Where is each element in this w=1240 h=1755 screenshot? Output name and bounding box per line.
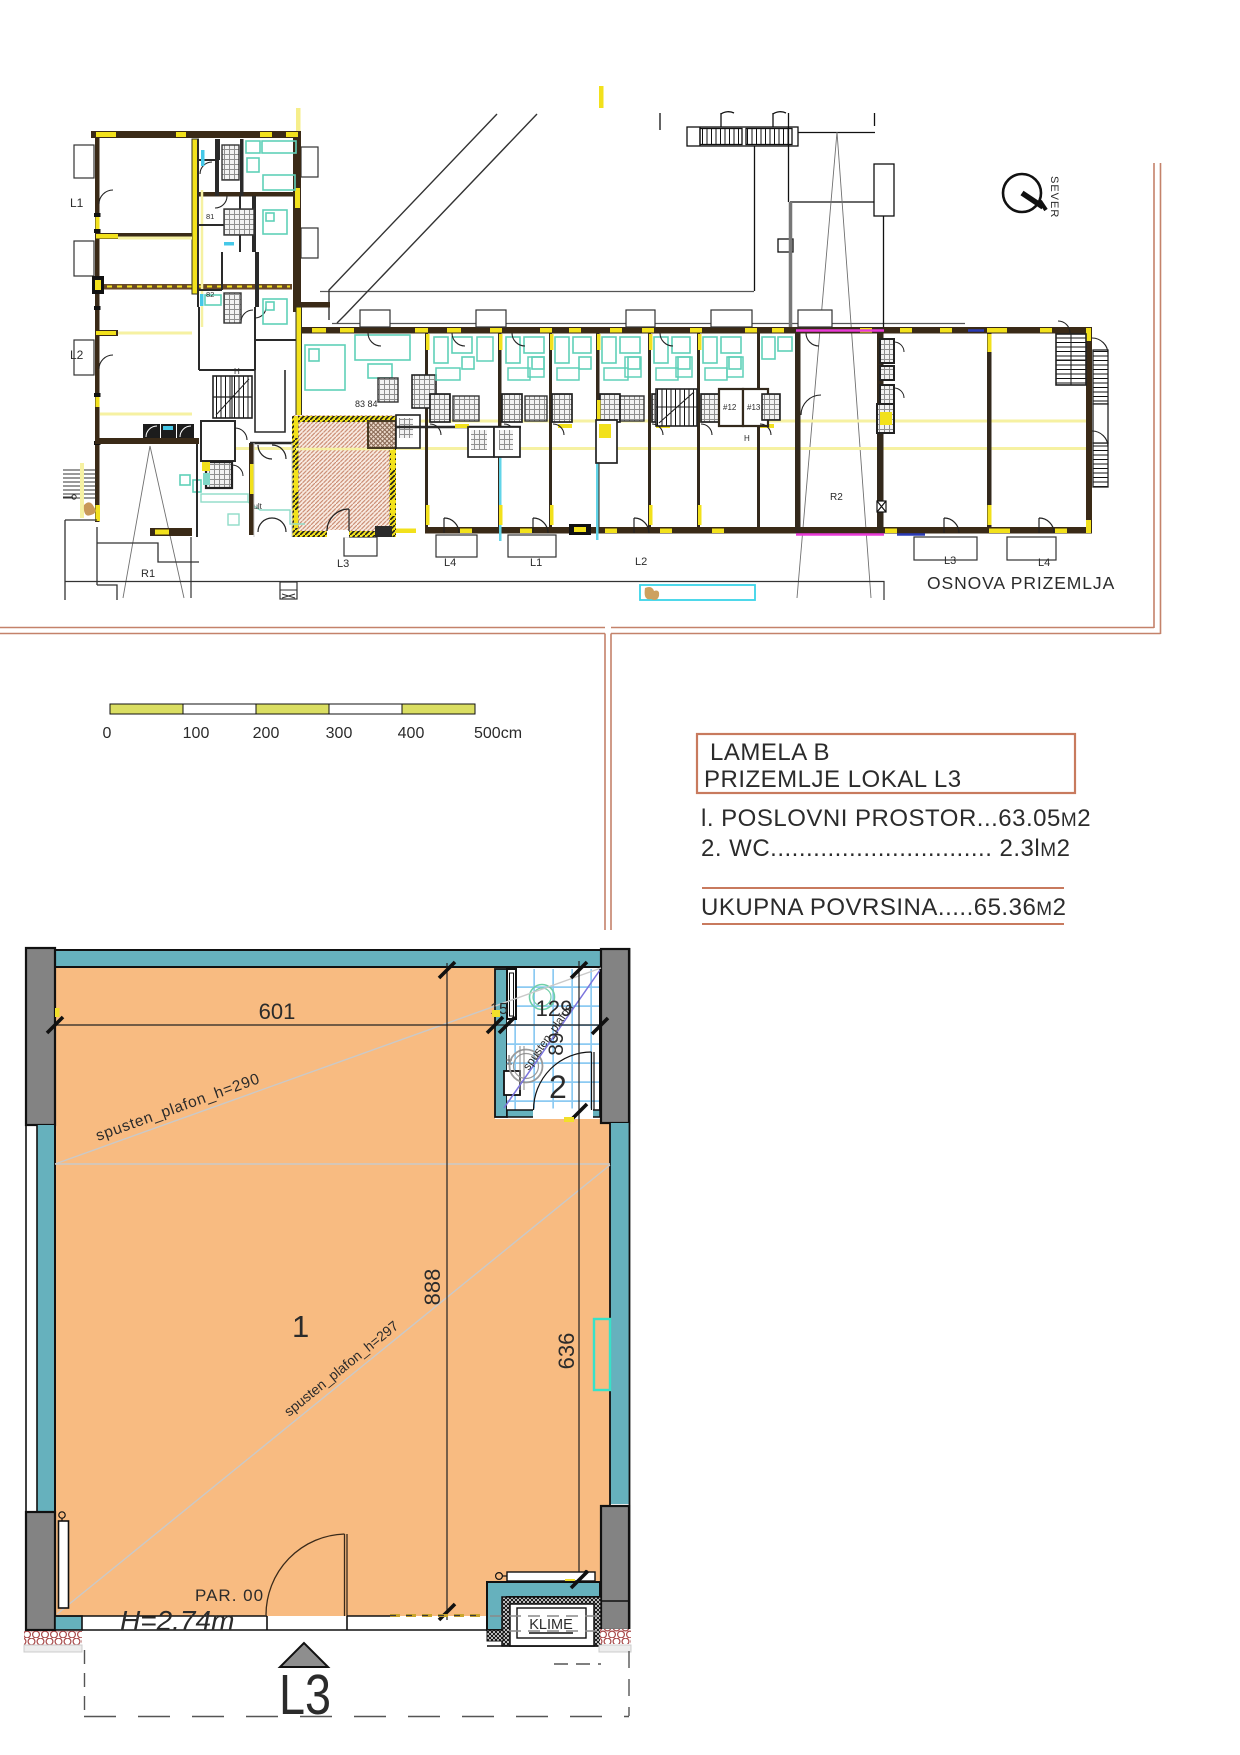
svg-text:l. POSLOVNI PROSTOR...63.05M2: l. POSLOVNI PROSTOR...63.05M2 [701,805,1091,832]
svg-text:81: 81 [206,212,214,221]
svg-text:89: 89 [545,1032,568,1055]
svg-text:H: H [234,367,240,376]
svg-text:L2: L2 [635,556,647,568]
svg-text:L1: L1 [530,557,542,569]
svg-text:83 84: 83 84 [355,399,378,409]
svg-text:UKUPNA POVRSINA.....65.36M2: UKUPNA POVRSINA.....65.36M2 [701,894,1066,921]
svg-text:H: H [744,434,750,443]
svg-text:636: 636 [554,1333,579,1370]
svg-text:129: 129 [536,996,573,1021]
svg-text:PRIZEMLJE LOKAL L3: PRIZEMLJE LOKAL L3 [704,766,962,793]
svg-text:400: 400 [398,725,425,742]
svg-text:L3: L3 [944,555,956,567]
svg-text:2. WC.........................: 2. WC............................... 2.3… [701,835,1070,862]
svg-text:L2: L2 [70,348,84,362]
svg-text:82: 82 [206,290,214,299]
svg-text:601: 601 [259,999,296,1024]
svg-text:L3: L3 [337,558,349,570]
svg-text:500cm: 500cm [474,725,522,742]
svg-text:LAMELA B: LAMELA B [710,739,830,766]
svg-text:L3: L3 [279,1663,331,1727]
svg-text:L4: L4 [444,557,456,569]
svg-text:#13: #13 [747,403,761,412]
svg-text:300: 300 [326,725,353,742]
svg-text:R1: R1 [141,568,155,580]
svg-text:0: 0 [103,725,112,742]
svg-text:1: 1 [292,1309,309,1344]
svg-text:L4: L4 [1038,557,1050,569]
svg-text:PAR. 00: PAR. 00 [195,1586,264,1605]
svg-text:100: 100 [183,725,210,742]
svg-text:200: 200 [253,725,280,742]
svg-text:#12: #12 [723,403,737,412]
svg-text:SEVER: SEVER [1048,176,1060,218]
svg-text:2: 2 [549,1069,567,1105]
svg-text:L1: L1 [70,196,84,210]
svg-text:KLIME: KLIME [529,1617,573,1633]
svg-text:H=2.74m: H=2.74m [120,1605,234,1636]
svg-text:R2: R2 [830,492,843,503]
svg-text:OSNOVA PRIZEMLJA: OSNOVA PRIZEMLJA [927,573,1115,593]
svg-text:888: 888 [420,1269,445,1306]
